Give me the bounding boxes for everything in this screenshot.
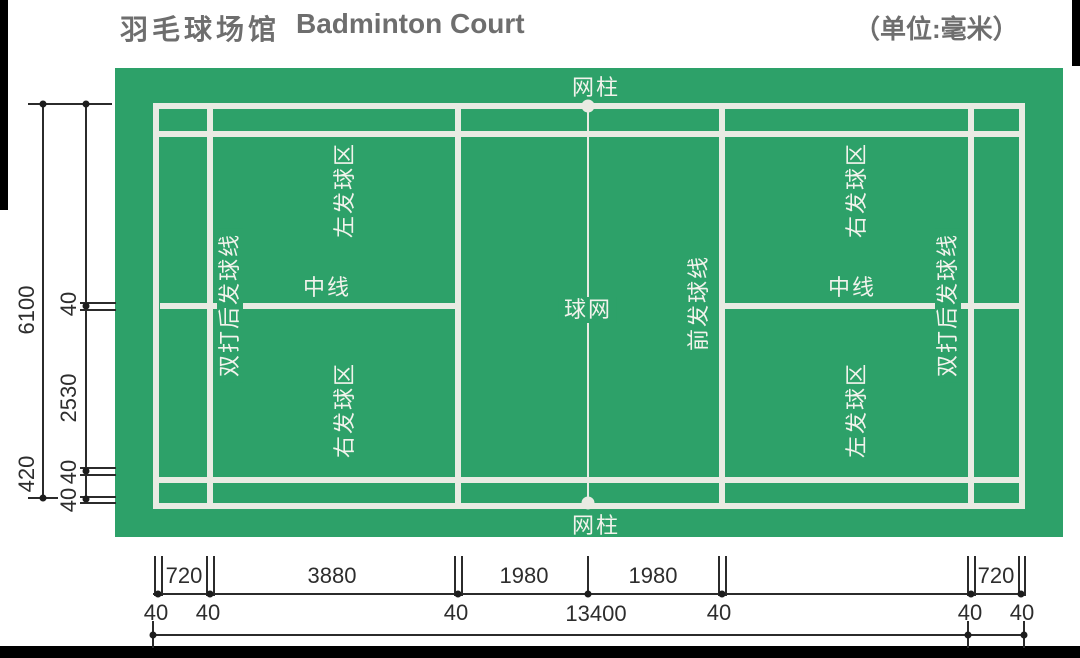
page-title-en: Badminton Court <box>296 8 525 40</box>
dim-dot <box>155 591 162 598</box>
dim-net-short-right: 1980 <box>629 565 678 587</box>
right-edge-bar <box>1072 0 1080 66</box>
dim-dot <box>965 632 972 639</box>
right-long-service-line-label: 双打后发球线 <box>935 228 961 382</box>
dim-service-depth: 2530 <box>58 374 80 423</box>
bottom-dim-tick <box>725 556 727 596</box>
dim-dot <box>1018 591 1025 598</box>
left-edge-bar <box>0 0 8 210</box>
dim-dot <box>585 591 592 598</box>
dim-dot <box>83 101 90 108</box>
dim-length-total: 13400 <box>565 603 626 625</box>
bottom-dim-tick <box>1024 556 1026 596</box>
right-half-center-line-label: 中线 <box>828 277 876 299</box>
dim-back-alley-right: 720 <box>978 565 1015 587</box>
dim-line-width-40: 40 <box>958 602 982 624</box>
bottom-dim-tick <box>974 556 976 596</box>
dim-dot <box>1021 632 1028 639</box>
right-half-bottom-service-area-label: 左发球区 <box>846 362 868 458</box>
dim-line-width-40: 40 <box>444 602 468 624</box>
dim-net-short-left: 1980 <box>500 565 549 587</box>
bottom-dim-tick <box>161 556 163 596</box>
dim-dot <box>83 496 90 503</box>
dim-line-width-40: 40 <box>707 602 731 624</box>
short-service-line-label: 前发球线 <box>688 255 710 351</box>
unit-note: （单位:毫米） <box>854 9 1019 46</box>
dim-back-alley-left: 720 <box>166 565 203 587</box>
net-post-dot-bottom <box>582 497 595 510</box>
dim-dot <box>719 591 726 598</box>
left-half-bottom-service-area-label: 右发球区 <box>334 362 356 458</box>
dim-dot <box>207 591 214 598</box>
court-mat: 网柱 网柱 球网 前发球线 左发球区 中线 右发球区 双打后发球线 右发球区 中… <box>115 68 1063 537</box>
left-half-top-service-area-label: 左发球区 <box>334 142 356 238</box>
dim-outer-line-width: 40 <box>58 488 80 512</box>
dim-singles-line-width: 40 <box>58 460 80 484</box>
dim-dot <box>455 591 462 598</box>
left-long-service-line-label: 双打后发球线 <box>217 228 243 382</box>
dim-side-alley: 420 <box>16 456 38 493</box>
dim-dot <box>40 495 47 502</box>
dim-dot <box>150 632 157 639</box>
net-label: 球网 <box>559 297 617 323</box>
net-post-dot-top <box>582 100 595 113</box>
bottom-dim-tick <box>461 556 463 596</box>
left-half-center-line-label: 中线 <box>303 277 351 299</box>
dim-dot <box>83 303 90 310</box>
center-line-left <box>160 303 460 309</box>
dim-line-width-40: 40 <box>1010 602 1034 624</box>
dim-centerline-width: 40 <box>58 292 80 316</box>
singles-sideline-bottom <box>153 477 1025 483</box>
bottom-dim-line-total <box>153 634 1025 636</box>
dim-dot <box>40 101 47 108</box>
bottom-dim-tick <box>213 556 215 596</box>
right-half-top-service-area-label: 右发球区 <box>846 142 868 238</box>
net-post-label-top: 网柱 <box>572 77 620 99</box>
dim-long-service-span: 3880 <box>308 565 357 587</box>
dim-dot <box>968 591 975 598</box>
singles-sideline-top <box>153 131 1025 137</box>
dim-line-width-40: 40 <box>196 602 220 624</box>
page-title-zh: 羽毛球场馆 <box>120 8 280 48</box>
dim-dot <box>83 468 90 475</box>
dim-line-width-40: 40 <box>144 602 168 624</box>
net-post-label-bottom: 网柱 <box>572 515 620 537</box>
left-dim-line-outer <box>42 104 44 498</box>
badminton-court-diagram: 羽毛球场馆 Badminton Court （单位:毫米） 网柱 网柱 球网 前… <box>0 0 1080 658</box>
dim-height-total: 6100 <box>16 286 38 335</box>
center-line-right <box>725 303 1019 309</box>
bottom-edge-bar <box>0 646 1080 658</box>
